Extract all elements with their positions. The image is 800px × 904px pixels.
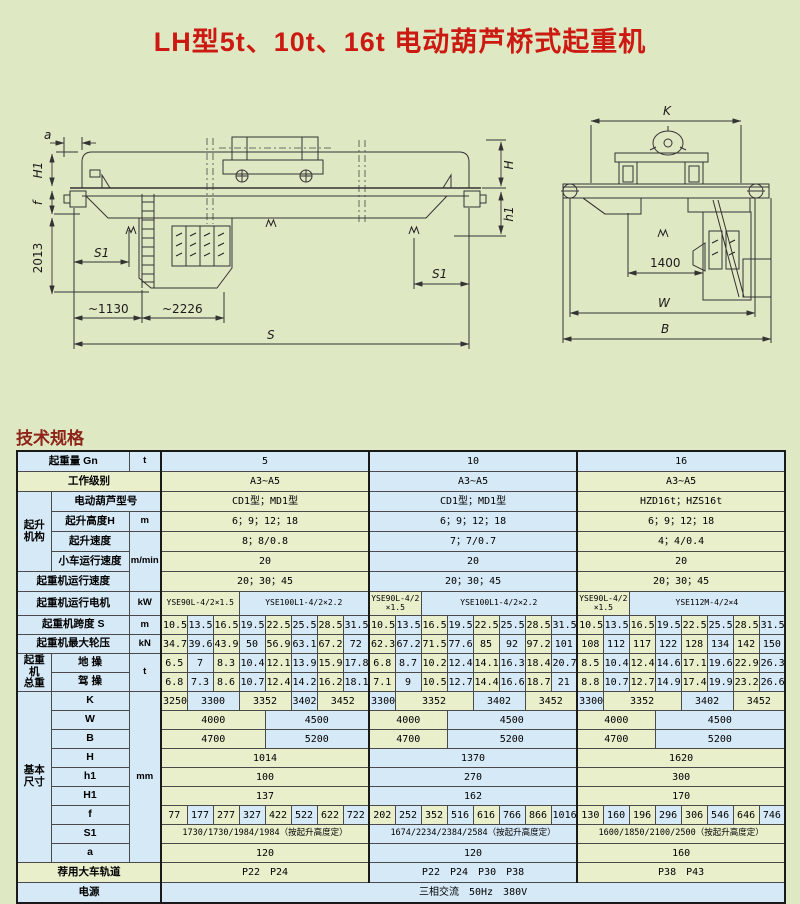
spec-cell: 63.1	[291, 635, 317, 654]
spec-cell: 20.7	[551, 654, 577, 673]
spec-cell: P22 P24 P30 P38	[369, 863, 577, 883]
spec-cell: 17.1	[681, 654, 707, 673]
spec-cell: A3~A5	[577, 472, 785, 492]
spec-cell: 10.5	[421, 673, 447, 692]
dim-label-H1: H1	[31, 162, 45, 179]
spec-cell: 21	[551, 673, 577, 692]
spec-cell: 10.7	[603, 673, 629, 692]
spec-cell: 108	[577, 635, 603, 654]
dim-label-h1: h1	[502, 206, 516, 221]
spec-cell: 3452	[733, 692, 785, 711]
spec-cell: 20；30；45	[369, 572, 577, 592]
spec-cell: 252	[395, 806, 421, 825]
spec-unit: kN	[129, 635, 161, 654]
spec-cell: 10.4	[603, 654, 629, 673]
spec-row-label: W	[51, 711, 129, 730]
trolley-cross-section	[615, 153, 708, 184]
spec-cell: 19.5	[447, 616, 473, 635]
spec-cell: 28.5	[733, 616, 759, 635]
spec-cell: 14.1	[473, 654, 499, 673]
spec-row-label: 起升速度	[51, 532, 129, 552]
spec-unit: t	[129, 451, 161, 472]
spec-cell: 22.5	[681, 616, 707, 635]
spec-cell: 177	[187, 806, 213, 825]
spec-cell: 28.5	[525, 616, 551, 635]
spec-cell: 4500	[447, 711, 577, 730]
spec-cell: 117	[629, 635, 655, 654]
spec-row-label: 起升高度H	[51, 512, 129, 532]
spec-cell: 4700	[161, 730, 265, 749]
bridge-girder	[70, 138, 481, 224]
spec-cell: 16.2	[317, 673, 343, 692]
spec-cell: 25.5	[291, 616, 317, 635]
spec-cell: 67.2	[317, 635, 343, 654]
spec-cell: 16.3	[499, 654, 525, 673]
spec-unit: t	[129, 654, 161, 692]
spec-cell: 3300	[187, 692, 239, 711]
spec-cell: 5	[161, 451, 369, 472]
spec-cell: 616	[473, 806, 499, 825]
spec-cell: 3452	[525, 692, 577, 711]
spec-cell: P38 P43	[577, 863, 785, 883]
spec-cell: 296	[655, 806, 681, 825]
spec-cell: 3300	[577, 692, 603, 711]
spec-cell: 4000	[161, 711, 265, 730]
spec-cell: 722	[343, 806, 369, 825]
spec-cell: 16.5	[421, 616, 447, 635]
dim-label-K: K	[663, 104, 672, 118]
spec-cell: 7	[187, 654, 213, 673]
spec-cell: 3402	[291, 692, 317, 711]
spec-cell: 31.5	[551, 616, 577, 635]
spec-cell: YSE90L-4/2 ×1.5	[369, 592, 421, 616]
spec-cell: 1730/1730/1984/1984（按起升高度定）	[161, 825, 369, 844]
spec-cell: 20；30；45	[161, 572, 369, 592]
spec-cell: 766	[499, 806, 525, 825]
spec-cell: YSE90L-4/2×1.5	[161, 592, 239, 616]
spec-row-lift-speed: 起升速度m/min8；8/0.87；7/0.74；4/0.4	[17, 532, 785, 552]
dim-label-2013: 2013	[31, 243, 45, 274]
spec-row-label: 起重机运行电机	[17, 592, 129, 616]
spec-cell: 7.3	[187, 673, 213, 692]
spec-cell: 97.2	[525, 635, 551, 654]
spec-cell: 10.4	[239, 654, 265, 673]
spec-cell: 6；9；12；18	[577, 512, 785, 532]
spec-cell: 9	[395, 673, 421, 692]
spec-row-label: 地 操	[51, 654, 129, 673]
spec-row-travel-motor: 起重机运行电机kWYSE90L-4/2×1.5YSE100L1-4/2×2.2Y…	[17, 592, 785, 616]
spec-cell: 4500	[655, 711, 785, 730]
dimensions: a H1 f 2013 S1 S1 ~1130 ~2226 S H h1	[31, 128, 516, 349]
spec-cell: 3402	[681, 692, 733, 711]
spec-cell: 130	[577, 806, 603, 825]
spec-cell: 1370	[369, 749, 577, 768]
spec-cell: 8.8	[577, 673, 603, 692]
spec-cell: 300	[577, 768, 785, 787]
spec-cell: 7；7/0.7	[369, 532, 577, 552]
spec-cell: 13.5	[395, 616, 421, 635]
spec-cell: 6；9；12；18	[369, 512, 577, 532]
spec-cell: 50	[239, 635, 265, 654]
spec-cell: 6；9；12；18	[161, 512, 369, 532]
dim-label-H: H	[502, 160, 516, 169]
spec-cell: 19.6	[707, 654, 733, 673]
spec-cell: 270	[369, 768, 577, 787]
spec-cell: YSE112M-4/2×4	[629, 592, 785, 616]
dim-label-1400: 1400	[650, 256, 681, 270]
spec-cell: 8；8/0.8	[161, 532, 369, 552]
dim-label-f: f	[31, 199, 45, 205]
spec-row-label: 起重量 Gn	[17, 451, 129, 472]
spec-cell: 100	[161, 768, 369, 787]
spec-cell: YSE90L-4/2 ×1.5	[577, 592, 629, 616]
spec-row-weight-ground: 起重 机 总重地 操t6.578.310.412.113.915.917.86.…	[17, 654, 785, 673]
spec-cell: 26.3	[759, 654, 785, 673]
spec-cell: 17.8	[343, 654, 369, 673]
spec-cell: 3402	[473, 692, 525, 711]
spec-cell: 112	[603, 635, 629, 654]
dim-label-S1-right: S1	[432, 267, 447, 281]
spec-row-rail: 荐用大车轨道P22 P24P22 P24 P30 P38P38 P43	[17, 863, 785, 883]
spec-row-label: 电动葫芦型号	[51, 492, 161, 512]
spec-cell: 14.4	[473, 673, 499, 692]
spec-cell: 13.5	[603, 616, 629, 635]
spec-cell: 1016	[551, 806, 577, 825]
spec-cell: 77.6	[447, 635, 473, 654]
spec-cell: 31.5	[343, 616, 369, 635]
spec-cell: 15.9	[317, 654, 343, 673]
spec-row-span: 起重机跨度 Sm10.513.516.519.522.525.528.531.5…	[17, 616, 785, 635]
spec-cell: 20	[369, 552, 577, 572]
spec-cell: HZD16t；HZS16t	[577, 492, 785, 512]
under-bridge-structures	[583, 198, 771, 300]
spec-cell: 352	[421, 806, 447, 825]
spec-cell: 56.9	[265, 635, 291, 654]
spec-cell: 8.7	[395, 654, 421, 673]
spec-row-label: 起重机跨度 S	[17, 616, 129, 635]
spec-cell: 4；4/0.4	[577, 532, 785, 552]
spec-cell: 8.3	[213, 654, 239, 673]
spec-cell: 62.3	[369, 635, 395, 654]
spec-group-label: 基本 尺寸	[17, 692, 51, 863]
spec-cell: 92	[499, 635, 525, 654]
spec-cell: 85	[473, 635, 499, 654]
spec-cell: A3~A5	[161, 472, 369, 492]
spec-cell: 39.6	[187, 635, 213, 654]
page-title: LH型5t、10t、16t 电动葫芦桥式起重机	[0, 20, 800, 59]
spec-cell: 546	[707, 806, 733, 825]
spec-cell: 28.5	[317, 616, 343, 635]
spec-cell: 13.9	[291, 654, 317, 673]
spec-cell: 160	[603, 806, 629, 825]
spec-cell: 6.5	[161, 654, 187, 673]
spec-row-label: 起重机运行速度	[17, 572, 129, 592]
spec-cell: 10	[369, 451, 577, 472]
spec-cell: 277	[213, 806, 239, 825]
spec-cell: 14.2	[291, 673, 317, 692]
spec-cell: YSE100L1-4/2×2.2	[421, 592, 577, 616]
spec-cell: 20	[577, 552, 785, 572]
spec-cell: 162	[369, 787, 577, 806]
spec-cell: 14.9	[655, 673, 681, 692]
spec-cell: 1674/2234/2384/2584（按起升高度定）	[369, 825, 577, 844]
spec-cell: 6.8	[369, 654, 395, 673]
section-title: 技术规格	[16, 424, 84, 449]
spec-row-label: f	[51, 806, 129, 825]
spec-cell: 5200	[265, 730, 369, 749]
spec-cell: 866	[525, 806, 551, 825]
spec-cell: CD1型；MD1型	[161, 492, 369, 512]
spec-cell: 22.5	[473, 616, 499, 635]
spec-cell: 67.2	[395, 635, 421, 654]
spec-cell: 137	[161, 787, 369, 806]
spec-row-label: 工作级别	[17, 472, 161, 492]
spec-cell: 12.7	[447, 673, 473, 692]
spec-row-capacity: 起重量 Gnt51016	[17, 451, 785, 472]
spec-row-max-wheel-load: 起重机最大轮压kN34.739.643.95056.963.167.27262.…	[17, 635, 785, 654]
spec-cell: 22.9	[733, 654, 759, 673]
spec-cell: 120	[161, 844, 369, 863]
spec-table-wrap: 起重量 Gnt51016工作级别A3~A5A3~A5A3~A5起升 机构电动葫芦…	[16, 450, 786, 904]
spec-cell: 12.1	[265, 654, 291, 673]
spec-cell: 23.2	[733, 673, 759, 692]
spec-unit: kW	[129, 592, 161, 616]
spec-cell: 18.1	[343, 673, 369, 692]
spec-cell: 77	[161, 806, 187, 825]
spec-cell: 134	[707, 635, 733, 654]
spec-row-label: H1	[51, 787, 129, 806]
spec-cell: 25.5	[707, 616, 733, 635]
spec-row-duty-class: 工作级别A3~A5A3~A5A3~A5	[17, 472, 785, 492]
spec-cell: 4700	[369, 730, 447, 749]
spec-row-label: h1	[51, 768, 129, 787]
spec-cell: 160	[577, 844, 785, 863]
spec-row-label: S1	[51, 825, 129, 844]
dim-label-W: W	[658, 296, 671, 310]
spec-cell: 26.6	[759, 673, 785, 692]
spec-cell: 120	[369, 844, 577, 863]
spec-cell: CD1型；MD1型	[369, 492, 577, 512]
spec-unit: m	[129, 616, 161, 635]
spec-row-label: B	[51, 730, 129, 749]
spec-cell: 3300	[369, 692, 395, 711]
spec-cell: 5200	[655, 730, 785, 749]
section-mark	[658, 230, 668, 237]
spec-cell: 10.7	[239, 673, 265, 692]
spec-cell: 7.1	[369, 673, 395, 692]
dimensions: K 1400 W B	[563, 104, 771, 343]
spec-cell: 6.8	[161, 673, 187, 692]
spec-cell: 72	[343, 635, 369, 654]
spec-cell: 3352	[603, 692, 681, 711]
spec-cell: 10.5	[369, 616, 395, 635]
spec-cell: 71.5	[421, 635, 447, 654]
spec-cell: 19.5	[239, 616, 265, 635]
spec-cell: 22.5	[265, 616, 291, 635]
spec-cell: 17.4	[681, 673, 707, 692]
spec-cell: 202	[369, 806, 395, 825]
spec-cell: 622	[317, 806, 343, 825]
spec-cell: 196	[629, 806, 655, 825]
spec-cell: 16.5	[629, 616, 655, 635]
spec-cell: 12.4	[265, 673, 291, 692]
spec-cell: 522	[291, 806, 317, 825]
spec-row-lift-height: 起升高度Hm6；9；12；186；9；12；186；9；12；18	[17, 512, 785, 532]
spec-cell: 20	[161, 552, 369, 572]
spec-cell: 16	[577, 451, 785, 472]
dim-label-1130: ~1130	[88, 302, 129, 316]
spec-row-label: 驾 操	[51, 673, 129, 692]
side-view-drawing: a H1 f 2013 S1 S1 ~1130 ~2226 S H h1	[14, 110, 536, 368]
spec-cell: 306	[681, 806, 707, 825]
spec-cell: 746	[759, 806, 785, 825]
spec-cell: 14.6	[655, 654, 681, 673]
spec-cell: 5200	[447, 730, 577, 749]
spec-cell: 646	[733, 806, 759, 825]
spec-cell: 101	[551, 635, 577, 654]
spec-cell: 4000	[577, 711, 655, 730]
spec-cell: P22 P24	[161, 863, 369, 883]
end-view-drawing: K 1400 W B	[543, 101, 795, 363]
spec-cell: 13.5	[187, 616, 213, 635]
hoist-trolley	[219, 137, 332, 182]
spec-cell: 4500	[265, 711, 369, 730]
spec-cell: 1600/1850/2100/2500（按起升高度定）	[577, 825, 785, 844]
spec-cell: 10.5	[577, 616, 603, 635]
spec-cell: 8.5	[577, 654, 603, 673]
spec-unit: m/min	[129, 532, 161, 592]
spec-cell: 3352	[395, 692, 473, 711]
spec-cell: 4700	[577, 730, 655, 749]
girder-cross-beam	[561, 184, 769, 198]
spec-cell: 12.7	[629, 673, 655, 692]
spec-cell: 19.5	[655, 616, 681, 635]
spec-cell: 43.9	[213, 635, 239, 654]
spec-cell: 18.7	[525, 673, 551, 692]
spec-cell: 170	[577, 787, 785, 806]
spec-cell: 3452	[317, 692, 369, 711]
spec-cell: 1014	[161, 749, 369, 768]
hoist-motor	[650, 126, 686, 155]
spec-cell: 1620	[577, 749, 785, 768]
spec-row-label: 荐用大车轨道	[17, 863, 161, 883]
spec-cell: 34.7	[161, 635, 187, 654]
spec-cell: 10.2	[421, 654, 447, 673]
spec-cell: 122	[655, 635, 681, 654]
dim-label-S: S	[267, 328, 275, 342]
dim-label-S1-left: S1	[94, 246, 109, 260]
spec-row-dim-K: 基本 尺寸Kmm32503300335234023452330033523402…	[17, 692, 785, 711]
spec-cell: 20；30；45	[577, 572, 785, 592]
spec-row-label: H	[51, 749, 129, 768]
dim-label-2226: ~2226	[162, 302, 203, 316]
spec-cell: 516	[447, 806, 473, 825]
spec-cell: 19.9	[707, 673, 733, 692]
spec-cell: 18.4	[525, 654, 551, 673]
dim-label-a: a	[44, 128, 51, 142]
spec-cell: 142	[733, 635, 759, 654]
operator-cab	[139, 194, 232, 288]
spec-cell: 12.4	[447, 654, 473, 673]
spec-cell: 128	[681, 635, 707, 654]
spec-cell: 327	[239, 806, 265, 825]
spec-cell: YSE100L1-4/2×2.2	[239, 592, 369, 616]
spec-cell: 25.5	[499, 616, 525, 635]
spec-row-label: K	[51, 692, 129, 711]
spec-cell: 10.5	[161, 616, 187, 635]
catalog-page: { "page": { "title": "LH型5t、10t、16t 电动葫芦…	[0, 0, 800, 900]
spec-cell: 150	[759, 635, 785, 654]
spec-cell: 4000	[369, 711, 447, 730]
spec-cell: 3352	[239, 692, 291, 711]
spec-group-label: 起重 机 总重	[17, 654, 51, 692]
spec-unit: m	[129, 512, 161, 532]
spec-row-label: a	[51, 844, 129, 863]
spec-group-label: 起升 机构	[17, 492, 51, 572]
spec-cell: 3250	[161, 692, 187, 711]
spec-cell: 16.6	[499, 673, 525, 692]
spec-cell: 31.5	[759, 616, 785, 635]
spec-cell: 12.4	[629, 654, 655, 673]
spec-row-hoist-model: 起升 机构电动葫芦型号CD1型；MD1型CD1型；MD1型HZD16t；HZS1…	[17, 492, 785, 512]
spec-unit: mm	[129, 692, 161, 863]
spec-cell: 16.5	[213, 616, 239, 635]
spec-table: 起重量 Gnt51016工作级别A3~A5A3~A5A3~A5起升 机构电动葫芦…	[16, 450, 786, 904]
spec-cell: A3~A5	[369, 472, 577, 492]
dim-label-B: B	[661, 322, 669, 336]
end-truck	[64, 191, 486, 207]
spec-row-label: 起重机最大轮压	[17, 635, 129, 654]
section-marks	[126, 220, 419, 234]
spec-row-label: 小车运行速度	[51, 552, 129, 572]
spec-cell: 422	[265, 806, 291, 825]
spec-cell: 8.6	[213, 673, 239, 692]
